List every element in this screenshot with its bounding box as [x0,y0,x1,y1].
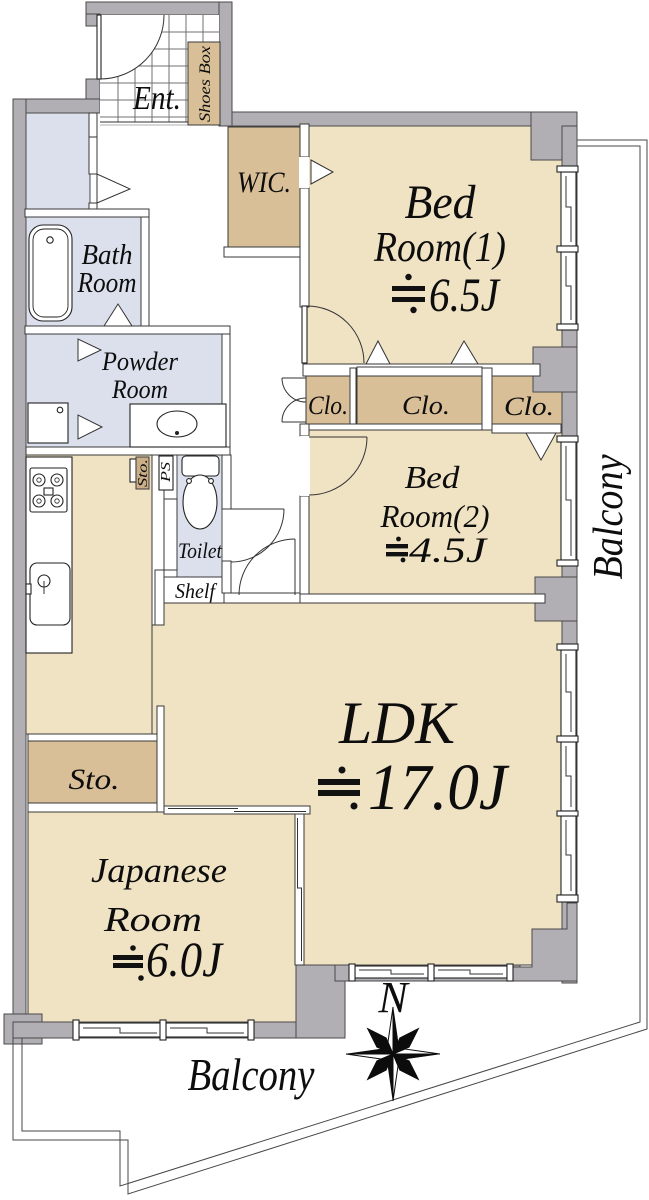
svg-text:Room(2): Room(2) [380,498,490,534]
svg-text:Room: Room [77,268,137,299]
svg-text:WIC.: WIC. [237,166,291,199]
svg-text:Balcony: Balcony [586,454,632,579]
svg-text:Bed: Bed [405,176,477,229]
svg-text:Powder: Powder [101,347,179,376]
svg-text:Bed: Bed [405,459,461,495]
svg-text:17.0J: 17.0J [368,751,510,824]
svg-text:Room: Room [111,375,168,404]
svg-text:Clo.: Clo. [402,391,450,420]
svg-text:Shelf: Shelf [175,579,218,603]
svg-text:Balcony: Balcony [188,1049,315,1100]
svg-text:PS: PS [159,462,174,483]
svg-text:4.5J: 4.5J [409,530,489,570]
svg-text:Room(1): Room(1) [373,225,506,271]
svg-text:Ent.: Ent. [132,80,181,117]
svg-text:N: N [377,973,410,1022]
svg-text:LDK: LDK [338,690,458,756]
svg-text:Toilet: Toilet [178,538,223,563]
svg-text:6.0J: 6.0J [146,931,225,987]
svg-text:Japanese: Japanese [91,851,227,890]
svg-text:Clo.: Clo. [308,391,348,420]
svg-text:6.5J: 6.5J [429,269,501,322]
svg-text:Sto.: Sto. [69,763,120,796]
svg-text:Shoes Box: Shoes Box [197,46,214,122]
svg-text:Bath: Bath [82,240,133,271]
svg-text:Sto.: Sto. [136,459,151,487]
svg-text:Clo.: Clo. [504,392,554,421]
